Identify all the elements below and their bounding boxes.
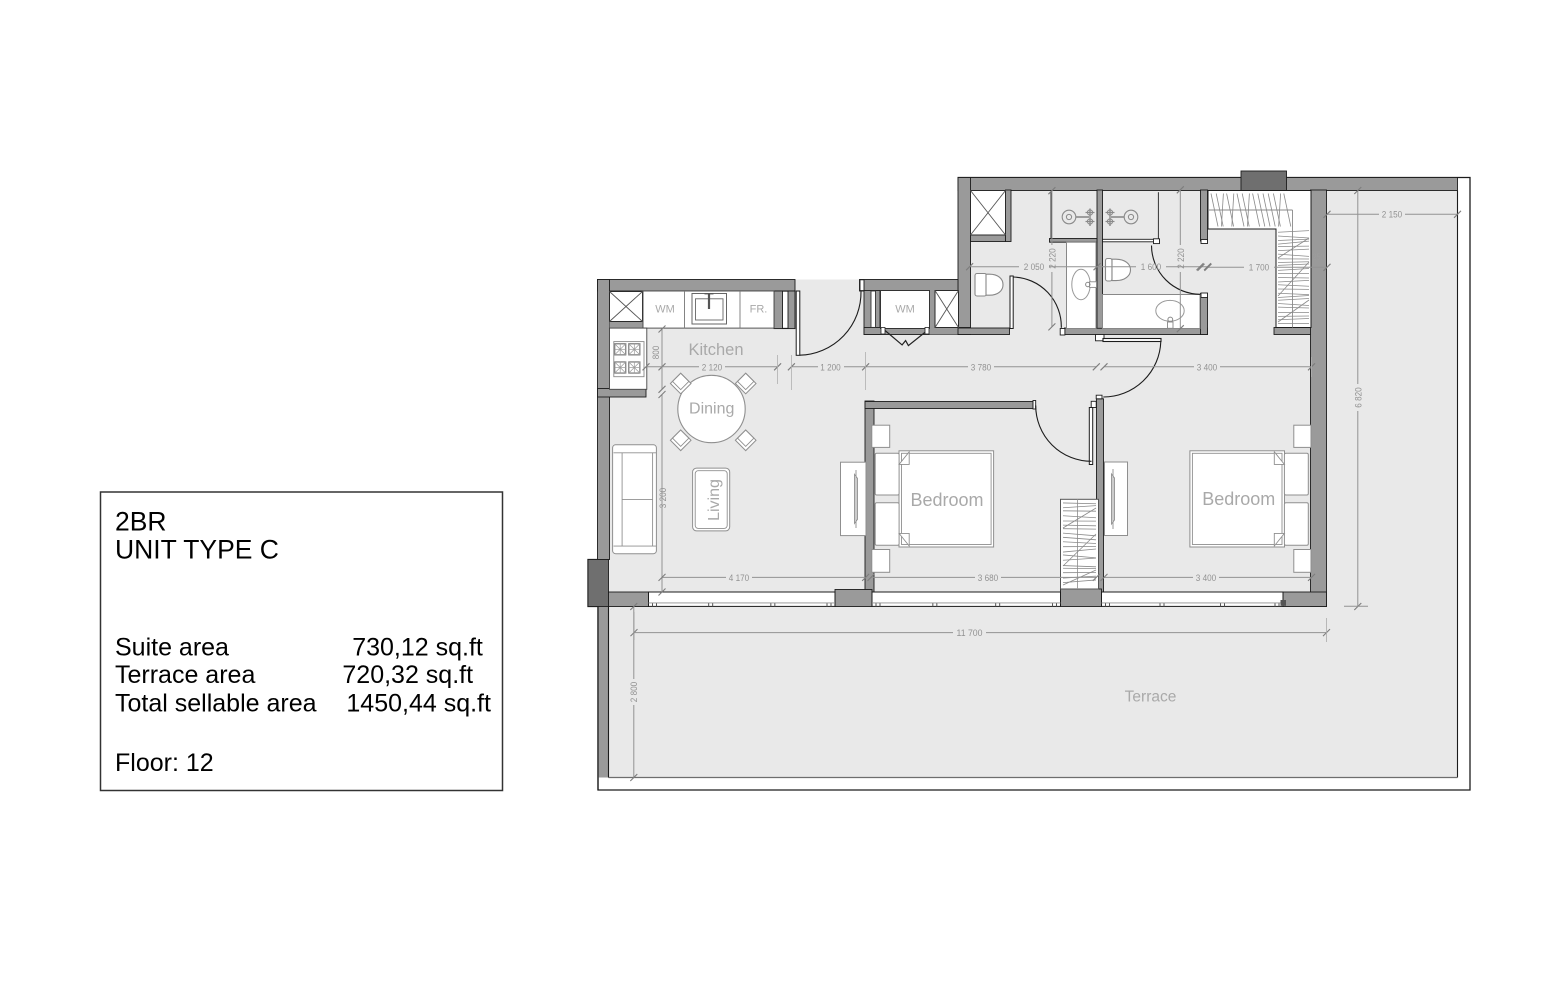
svg-text:Dining: Dining [689,401,734,418]
svg-text:Bedroom: Bedroom [1202,489,1275,509]
svg-text:6 820: 6 820 [1353,387,1363,407]
svg-text:730,12 sq.ft: 730,12 sq.ft [352,634,483,662]
svg-text:Terrace: Terrace [1125,689,1177,706]
svg-text:1450,44 sq.ft: 1450,44 sq.ft [346,689,491,717]
svg-text:WM: WM [895,304,915,316]
svg-text:1 200: 1 200 [820,363,840,373]
svg-text:WM: WM [655,304,675,316]
svg-text:Total sellable area: Total sellable area [115,689,317,717]
svg-text:11 700: 11 700 [957,628,983,638]
svg-text:Terrace area: Terrace area [115,661,255,689]
svg-text:2BR: 2BR [115,506,167,536]
svg-text:1 600: 1 600 [1141,262,1161,272]
svg-text:2 220: 2 220 [1176,248,1186,268]
svg-text:2 220: 2 220 [1047,248,1057,268]
svg-text:UNIT TYPE C: UNIT TYPE C [115,535,279,565]
svg-text:2 800: 2 800 [629,682,639,702]
svg-text:3 400: 3 400 [1197,363,1217,373]
svg-text:FR.: FR. [750,304,768,316]
svg-text:1 700: 1 700 [1249,262,1269,272]
svg-text:800: 800 [651,346,661,360]
svg-text:Suite area: Suite area [115,634,229,662]
svg-text:Bedroom: Bedroom [910,490,983,510]
svg-text:3 680: 3 680 [978,573,998,583]
svg-text:2 150: 2 150 [1382,210,1402,220]
svg-text:Floor: 12: Floor: 12 [115,749,214,777]
svg-text:Living: Living [706,479,723,521]
svg-text:Kitchen: Kitchen [688,341,743,359]
svg-text:3 200: 3 200 [658,488,668,508]
svg-text:2 120: 2 120 [702,363,722,373]
svg-text:4 170: 4 170 [729,573,749,583]
svg-text:3 780: 3 780 [971,363,991,373]
svg-text:720,32 sq.ft: 720,32 sq.ft [342,661,473,689]
svg-text:3 400: 3 400 [1196,573,1216,583]
svg-text:250: 250 [1313,252,1325,262]
svg-text:2 050: 2 050 [1024,262,1044,272]
